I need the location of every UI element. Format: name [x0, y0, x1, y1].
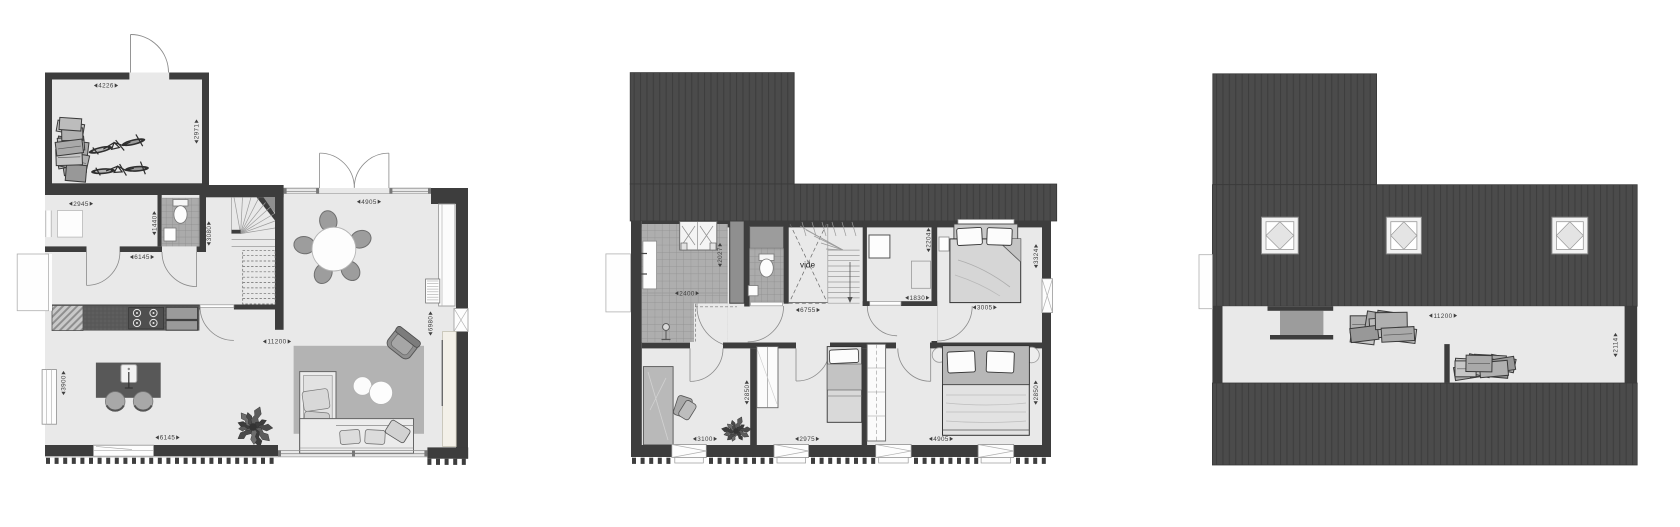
svg-text:4905: 4905 — [933, 436, 949, 443]
svg-text:2850: 2850 — [1033, 385, 1040, 401]
svg-text:2400: 2400 — [679, 290, 695, 297]
svg-text:2975: 2975 — [799, 436, 815, 443]
svg-text:6755: 6755 — [800, 307, 816, 314]
svg-text:3324: 3324 — [1033, 248, 1040, 264]
svg-text:11200: 11200 — [1433, 313, 1452, 320]
svg-text:2114: 2114 — [1613, 337, 1620, 352]
svg-text:11200: 11200 — [267, 339, 286, 346]
svg-text:vide: vide — [800, 260, 815, 269]
svg-text:1440: 1440 — [152, 215, 159, 231]
svg-text:4905: 4905 — [361, 199, 377, 206]
svg-text:2204: 2204 — [926, 232, 933, 248]
svg-text:3100: 3100 — [697, 436, 713, 443]
svg-text:6145: 6145 — [134, 254, 150, 261]
svg-text:6980: 6980 — [428, 316, 435, 332]
svg-text:3080: 3080 — [206, 226, 213, 242]
svg-text:2971: 2971 — [194, 124, 201, 140]
svg-text:2945: 2945 — [73, 201, 89, 208]
svg-text:1830: 1830 — [909, 295, 925, 302]
svg-text:2850: 2850 — [744, 384, 751, 400]
svg-text:4226: 4226 — [98, 83, 114, 90]
svg-text:6145: 6145 — [160, 435, 176, 442]
svg-text:3900: 3900 — [61, 375, 68, 391]
svg-text:3005: 3005 — [977, 305, 993, 312]
svg-text:2027: 2027 — [717, 247, 724, 263]
